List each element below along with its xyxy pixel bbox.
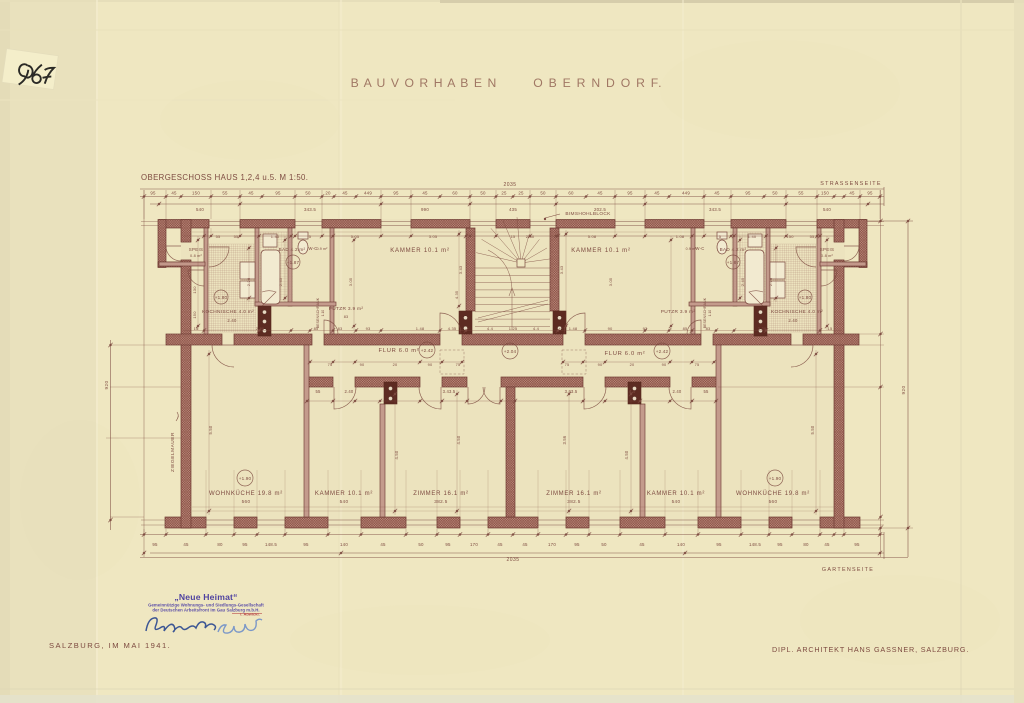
svg-text:45: 45 bbox=[171, 191, 177, 196]
svg-text:2.20: 2.20 bbox=[256, 326, 265, 331]
svg-text:4.50: 4.50 bbox=[456, 435, 461, 444]
svg-text:KAMMER 10.1 m²: KAMMER 10.1 m² bbox=[390, 248, 450, 254]
svg-text:„Neue Heimat“: „Neue Heimat“ bbox=[174, 592, 237, 602]
svg-text:90: 90 bbox=[360, 362, 365, 367]
svg-text:45: 45 bbox=[824, 542, 830, 547]
svg-text:95: 95 bbox=[854, 542, 860, 547]
svg-text:45: 45 bbox=[380, 542, 386, 547]
svg-text:BESENSCHRANK: BESENSCHRANK bbox=[703, 297, 707, 328]
svg-text:540: 540 bbox=[196, 207, 204, 212]
svg-text:2.40: 2.40 bbox=[227, 318, 237, 323]
svg-text:5.50: 5.50 bbox=[208, 425, 213, 434]
svg-text:3.05: 3.05 bbox=[608, 277, 613, 286]
svg-text:75: 75 bbox=[695, 362, 700, 367]
svg-text:KAMMER 10.1 m²: KAMMER 10.1 m² bbox=[647, 491, 705, 497]
svg-text:OBERGESCHOSS HAUS 1,2,4 u.5. M: OBERGESCHOSS HAUS 1,2,4 u.5. M 1:50. bbox=[141, 173, 308, 182]
svg-text:140: 140 bbox=[340, 542, 348, 547]
svg-text:1.25: 1.25 bbox=[509, 326, 518, 331]
svg-text:55: 55 bbox=[216, 234, 221, 239]
svg-text:1.48: 1.48 bbox=[416, 326, 425, 331]
svg-text:382.5: 382.5 bbox=[434, 499, 448, 504]
svg-text:95: 95 bbox=[275, 191, 281, 196]
svg-text:W-C: W-C bbox=[696, 246, 705, 251]
svg-text:60: 60 bbox=[452, 191, 458, 196]
svg-text:4.4: 4.4 bbox=[533, 326, 540, 331]
svg-text:150: 150 bbox=[821, 191, 829, 196]
svg-text:+2.42: +2.42 bbox=[656, 349, 669, 354]
svg-text:1.08: 1.08 bbox=[676, 234, 685, 239]
svg-text:2.40: 2.40 bbox=[788, 318, 798, 323]
svg-text:KOCHNISCHE 4.0 m²: KOCHNISCHE 4.0 m² bbox=[771, 309, 823, 315]
svg-text:130: 130 bbox=[192, 286, 197, 294]
svg-text:50: 50 bbox=[480, 191, 486, 196]
svg-text:4.50: 4.50 bbox=[394, 450, 399, 459]
svg-text:920: 920 bbox=[901, 386, 906, 395]
svg-text:150: 150 bbox=[192, 311, 197, 319]
svg-text:140: 140 bbox=[677, 542, 685, 547]
svg-text:2.40: 2.40 bbox=[673, 389, 682, 394]
svg-text:KAMMER 10.1 m²: KAMMER 10.1 m² bbox=[571, 248, 631, 254]
svg-text:3.43.5: 3.43.5 bbox=[565, 389, 578, 394]
svg-text:2035: 2035 bbox=[503, 182, 516, 188]
svg-text:540: 540 bbox=[672, 499, 681, 504]
svg-text:KAMMER 10.1 m²: KAMMER 10.1 m² bbox=[315, 491, 373, 497]
svg-text:920: 920 bbox=[104, 381, 109, 390]
svg-text:45: 45 bbox=[183, 542, 189, 547]
svg-text:50: 50 bbox=[305, 191, 311, 196]
svg-text:75: 75 bbox=[456, 362, 461, 367]
svg-text:25: 25 bbox=[518, 191, 524, 196]
svg-text:B A U V O R H A B E N: B A U V O R H A B E N bbox=[351, 76, 498, 90]
svg-text:50: 50 bbox=[772, 191, 778, 196]
svg-text:BAD 4.2 m²: BAD 4.2 m² bbox=[720, 247, 747, 252]
svg-text:540: 540 bbox=[823, 207, 831, 212]
svg-text:170: 170 bbox=[548, 542, 556, 547]
svg-text:148.5: 148.5 bbox=[265, 542, 277, 547]
svg-text:+1.90: +1.90 bbox=[769, 476, 782, 481]
svg-text:3.43: 3.43 bbox=[559, 265, 564, 274]
svg-text:5.50: 5.50 bbox=[810, 425, 815, 434]
svg-text:0.9 m²: 0.9 m² bbox=[317, 247, 328, 251]
svg-text:55: 55 bbox=[222, 191, 228, 196]
svg-text:WOHNKÜCHE 19.8 m²: WOHNKÜCHE 19.8 m² bbox=[736, 490, 810, 497]
svg-text:45: 45 bbox=[849, 191, 855, 196]
svg-text:83: 83 bbox=[338, 326, 343, 331]
svg-text:4.4: 4.4 bbox=[487, 326, 494, 331]
svg-text:3.43: 3.43 bbox=[458, 265, 463, 274]
svg-text:4.35: 4.35 bbox=[448, 326, 457, 331]
svg-text:ZIMMER 16.1 m²: ZIMMER 16.1 m² bbox=[546, 491, 601, 497]
svg-text:0.8 m²: 0.8 m² bbox=[190, 254, 202, 258]
svg-text:O B E R N D O R F.: O B E R N D O R F. bbox=[533, 76, 663, 90]
svg-text:150: 150 bbox=[192, 191, 200, 196]
svg-text:90: 90 bbox=[428, 362, 433, 367]
svg-text:20: 20 bbox=[630, 362, 635, 367]
svg-text:FLUR 6.0 m²: FLUR 6.0 m² bbox=[379, 348, 420, 354]
svg-text:DIPL. ARCHITEKT HANS GASSNER,: DIPL. ARCHITEKT HANS GASSNER, SALZBURG. bbox=[772, 645, 969, 654]
svg-text:95: 95 bbox=[867, 191, 873, 196]
svg-text:90: 90 bbox=[598, 362, 603, 367]
svg-text:55: 55 bbox=[703, 389, 709, 394]
svg-text:BAD 4.2 m²: BAD 4.2 m² bbox=[279, 247, 306, 252]
svg-text:SALZBURG, IM MAI 1941.: SALZBURG, IM MAI 1941. bbox=[49, 641, 171, 650]
svg-text:1.10: 1.10 bbox=[708, 310, 712, 317]
svg-text:170: 170 bbox=[470, 542, 478, 547]
svg-text:5.08: 5.08 bbox=[588, 234, 597, 239]
svg-text:95: 95 bbox=[150, 191, 156, 196]
svg-text:2.20: 2.20 bbox=[768, 277, 773, 286]
svg-text:50: 50 bbox=[601, 542, 607, 547]
svg-text:0.8 m²: 0.8 m² bbox=[821, 254, 833, 258]
svg-text:80: 80 bbox=[217, 542, 223, 547]
svg-text:75: 75 bbox=[565, 362, 570, 367]
svg-text:55: 55 bbox=[315, 389, 321, 394]
svg-text:90: 90 bbox=[662, 362, 667, 367]
svg-text:90: 90 bbox=[608, 326, 613, 331]
svg-text:560: 560 bbox=[242, 499, 251, 504]
svg-text:20: 20 bbox=[393, 362, 398, 367]
svg-text:25: 25 bbox=[501, 191, 507, 196]
svg-text:45: 45 bbox=[522, 542, 528, 547]
svg-text:3.43.5: 3.43.5 bbox=[443, 389, 456, 394]
svg-text:85: 85 bbox=[683, 326, 688, 331]
svg-text:55: 55 bbox=[798, 191, 804, 196]
svg-text:BIMSHOHLBLOCK: BIMSHOHLBLOCK bbox=[565, 211, 611, 217]
svg-text:45: 45 bbox=[714, 191, 720, 196]
svg-text:435: 435 bbox=[509, 207, 517, 212]
svg-text:95: 95 bbox=[777, 542, 783, 547]
svg-text:449: 449 bbox=[682, 191, 690, 196]
svg-text:45: 45 bbox=[422, 191, 428, 196]
svg-text:343.5: 343.5 bbox=[304, 207, 316, 212]
svg-text:3.05: 3.05 bbox=[348, 277, 353, 286]
svg-text:2.20: 2.20 bbox=[246, 277, 251, 286]
svg-text:95: 95 bbox=[745, 191, 751, 196]
svg-text:343.5: 343.5 bbox=[709, 207, 721, 212]
svg-text:50: 50 bbox=[418, 542, 424, 547]
svg-text:4.35: 4.35 bbox=[454, 290, 459, 299]
svg-text:2035: 2035 bbox=[506, 557, 519, 563]
svg-text:45: 45 bbox=[639, 542, 645, 547]
svg-text:95: 95 bbox=[303, 542, 309, 547]
svg-text:80: 80 bbox=[803, 542, 809, 547]
svg-text:i. Abwickl.: i. Abwickl. bbox=[240, 612, 259, 617]
svg-text:95: 95 bbox=[393, 191, 399, 196]
svg-text:WOHNKÜCHE 19.8 m²: WOHNKÜCHE 19.8 m² bbox=[209, 490, 283, 497]
svg-text:1.40: 1.40 bbox=[271, 234, 280, 239]
svg-text:+1.80: +1.80 bbox=[799, 295, 812, 300]
svg-text:449: 449 bbox=[364, 191, 372, 196]
svg-text:560: 560 bbox=[769, 499, 778, 504]
svg-text:45: 45 bbox=[497, 542, 503, 547]
svg-text:95: 95 bbox=[716, 542, 722, 547]
svg-text:15: 15 bbox=[511, 235, 516, 239]
svg-text:ZIMMER 16.1 m²: ZIMMER 16.1 m² bbox=[413, 491, 468, 497]
svg-text:45: 45 bbox=[342, 191, 348, 196]
svg-text:45: 45 bbox=[654, 191, 660, 196]
svg-text:4.50: 4.50 bbox=[624, 450, 629, 459]
svg-text:2.40: 2.40 bbox=[345, 389, 354, 394]
svg-text:+1.80: +1.80 bbox=[215, 295, 228, 300]
svg-text:50: 50 bbox=[540, 191, 546, 196]
svg-text:SPEIS: SPEIS bbox=[189, 247, 203, 252]
svg-text:382.5: 382.5 bbox=[567, 499, 581, 504]
svg-text:3.56: 3.56 bbox=[562, 435, 567, 444]
svg-text:15: 15 bbox=[828, 326, 833, 331]
svg-text:540: 540 bbox=[340, 499, 349, 504]
svg-text:1.10: 1.10 bbox=[321, 310, 325, 317]
svg-text:+2.42: +2.42 bbox=[421, 348, 434, 353]
svg-text:PUTZR 3.9 m²: PUTZR 3.9 m² bbox=[329, 306, 364, 312]
svg-text:55: 55 bbox=[810, 234, 815, 239]
svg-text:KOCHNISCHE 4.0 m²: KOCHNISCHE 4.0 m² bbox=[202, 309, 254, 315]
svg-text:20: 20 bbox=[325, 191, 331, 196]
svg-text:+2.04: +2.04 bbox=[504, 349, 517, 354]
svg-text:95: 95 bbox=[627, 191, 633, 196]
svg-text:2.45: 2.45 bbox=[278, 277, 283, 286]
svg-text:3.05: 3.05 bbox=[429, 234, 438, 239]
svg-text:95: 95 bbox=[242, 542, 248, 547]
svg-text:+1.87: +1.87 bbox=[287, 260, 300, 265]
svg-text:ZIEGELMAUER: ZIEGELMAUER bbox=[170, 432, 176, 472]
svg-text:45: 45 bbox=[597, 191, 603, 196]
svg-text:1.48: 1.48 bbox=[569, 326, 578, 331]
svg-text:93: 93 bbox=[366, 326, 371, 331]
svg-text:STRASSENSEITE: STRASSENSEITE bbox=[820, 181, 882, 187]
svg-text:0.9 m²: 0.9 m² bbox=[686, 247, 697, 251]
svg-text:990: 990 bbox=[421, 207, 429, 212]
svg-text:+1.90: +1.90 bbox=[239, 476, 252, 481]
svg-text:+1.87: +1.87 bbox=[727, 260, 740, 265]
svg-text:2.45: 2.45 bbox=[740, 277, 745, 286]
svg-text:83: 83 bbox=[344, 315, 349, 319]
svg-text:95: 95 bbox=[445, 542, 451, 547]
svg-text:95: 95 bbox=[574, 542, 580, 547]
svg-text:PUTZR 3.9 m²: PUTZR 3.9 m² bbox=[661, 309, 696, 315]
svg-text:1.40: 1.40 bbox=[748, 234, 757, 239]
svg-text:60: 60 bbox=[568, 191, 574, 196]
svg-text:FLUR 6.0 m²: FLUR 6.0 m² bbox=[605, 351, 646, 357]
svg-text:95: 95 bbox=[152, 542, 158, 547]
svg-text:GARTENSEITE: GARTENSEITE bbox=[822, 567, 874, 573]
svg-text:148.5: 148.5 bbox=[749, 542, 761, 547]
svg-text:45: 45 bbox=[248, 191, 254, 196]
svg-text:BESENSCHRANK: BESENSCHRANK bbox=[316, 297, 320, 328]
svg-text:75: 75 bbox=[328, 362, 333, 367]
